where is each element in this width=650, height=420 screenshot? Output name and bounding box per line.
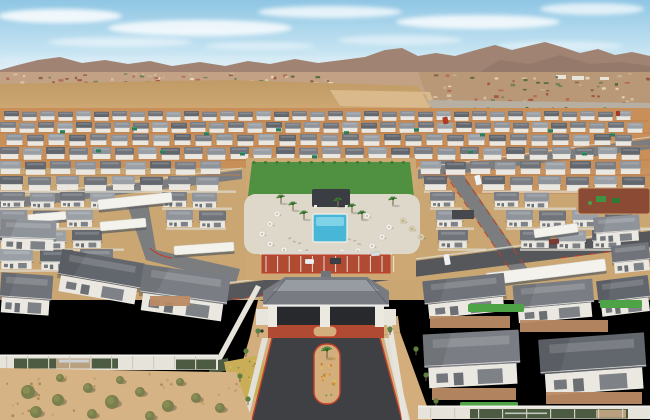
- house: [92, 147, 112, 159]
- house-roof-ridge: [449, 136, 463, 138]
- house-roof-ridge: [492, 113, 504, 114]
- house-roof-ridge: [197, 136, 211, 138]
- umbrella-pole: [402, 220, 403, 221]
- house-roof: [430, 192, 455, 201]
- rooftop-speck: [622, 96, 625, 98]
- rooftop-speck: [111, 78, 113, 81]
- house-roof-ridge: [155, 136, 169, 138]
- house: [258, 134, 276, 145]
- gravel-dot: [238, 386, 240, 388]
- tree-canopy: [433, 398, 438, 403]
- house-roof: [0, 176, 23, 185]
- rooftop-speck: [190, 78, 194, 80]
- front-door: [565, 244, 568, 248]
- house-roof-ridge: [366, 112, 378, 113]
- hedge-shrub: [299, 161, 302, 164]
- house: [380, 122, 397, 132]
- house: [292, 111, 308, 120]
- house: [184, 147, 204, 159]
- house-roof: [140, 177, 163, 186]
- house-roof: [438, 230, 468, 241]
- hedge-shrub: [333, 161, 336, 164]
- front-door: [50, 265, 53, 270]
- house-roof: [531, 135, 548, 142]
- house: [304, 122, 321, 132]
- house-roof: [506, 147, 525, 154]
- cloud: [0, 9, 122, 23]
- house: [90, 134, 108, 145]
- house-roof-ridge: [186, 112, 198, 113]
- gravel-dot: [73, 409, 76, 412]
- house-roof-ridge: [59, 124, 72, 126]
- house: [445, 162, 467, 175]
- house-wall: [521, 169, 540, 174]
- cloud: [338, 35, 462, 45]
- house-wall: [509, 117, 523, 120]
- house-wall: [527, 117, 541, 120]
- house-roof-ridge: [491, 136, 505, 138]
- house-roof-ridge: [534, 123, 547, 125]
- house-wall: [47, 154, 64, 159]
- house-roof: [266, 122, 282, 128]
- house-wall: [154, 142, 170, 146]
- house: [56, 176, 80, 190]
- front-door: [10, 264, 13, 269]
- house-wall: [491, 117, 505, 120]
- house-wall: [96, 129, 111, 133]
- house-roof: [0, 249, 33, 261]
- house-roof-ridge: [554, 135, 568, 137]
- front-door: [529, 243, 532, 247]
- house-wall: [208, 155, 225, 160]
- house: [382, 112, 398, 121]
- rooftop-speck: [291, 76, 295, 78]
- dumpster-lid: [468, 150, 473, 151]
- window: [439, 223, 442, 226]
- house-roof: [361, 123, 377, 129]
- row-sidewalk: [436, 228, 474, 230]
- umbrella-pole: [381, 236, 382, 237]
- house-wall: [257, 117, 271, 120]
- entry-lamp-post: [260, 329, 263, 332]
- house-roof: [285, 123, 301, 129]
- house-wall: [26, 170, 45, 175]
- house-roof: [346, 112, 361, 118]
- house-roof-ridge: [21, 124, 34, 126]
- house-roof: [322, 147, 341, 154]
- row-sidewalk: [162, 208, 232, 210]
- house-roof-ridge: [2, 148, 17, 150]
- house-wall: [229, 128, 244, 132]
- palm-crown: [361, 212, 363, 214]
- house: [276, 147, 296, 159]
- house: [418, 122, 435, 132]
- house: [342, 122, 359, 132]
- house: [171, 123, 188, 133]
- rooftop-speck: [23, 75, 25, 77]
- house-wall: [329, 117, 343, 120]
- rooftop-speck: [591, 89, 594, 91]
- dumpster-lid: [132, 127, 137, 128]
- window: [4, 264, 8, 267]
- house-roof-ridge: [312, 113, 324, 114]
- house: [610, 242, 650, 274]
- rooftop-speck: [528, 99, 533, 101]
- house-wall: [221, 117, 235, 120]
- rooftop-speck: [631, 98, 634, 101]
- house-wall: [511, 141, 527, 145]
- house-wall: [507, 154, 524, 159]
- pilaster: [111, 356, 112, 369]
- rooftop-speck: [133, 75, 135, 77]
- house-roof-ridge: [596, 135, 610, 137]
- garage-door: [89, 243, 97, 248]
- house-roof: [598, 112, 613, 118]
- house-roof: [174, 134, 191, 141]
- dirt-mound: [330, 90, 436, 108]
- dumpster-lid: [276, 128, 281, 129]
- flower: [325, 394, 327, 396]
- house-roof: [22, 112, 37, 118]
- dumpster-lid: [240, 152, 245, 153]
- groundcover-dot: [248, 376, 250, 378]
- house-roof-ridge: [240, 113, 252, 114]
- house-fascia: [520, 240, 550, 241]
- house: [0, 176, 23, 190]
- house-wall: [151, 169, 170, 174]
- house-roof: [544, 111, 559, 117]
- house: [545, 162, 567, 175]
- gravel-dot: [30, 382, 33, 385]
- front-door: [207, 223, 210, 227]
- house-roof: [69, 148, 88, 155]
- house-roof: [304, 122, 320, 128]
- house: [570, 161, 592, 174]
- distant-building: [600, 77, 609, 80]
- house-roof-ridge: [77, 163, 94, 165]
- house-roof: [202, 112, 217, 118]
- house-roof-ridge: [624, 178, 642, 180]
- rooftop-speck: [494, 95, 499, 98]
- house-roof: [166, 112, 181, 118]
- rooftop-speck: [446, 74, 450, 76]
- window: [3, 203, 6, 206]
- house: [475, 123, 492, 133]
- house-roof-ridge: [477, 124, 490, 126]
- house: [95, 123, 112, 133]
- house-roof: [598, 147, 617, 154]
- house: [184, 111, 200, 120]
- rooftop-speck: [433, 96, 437, 97]
- house-roof: [258, 134, 275, 141]
- house-roof-ridge: [428, 135, 442, 137]
- house: [196, 177, 220, 191]
- house-roof: [56, 176, 79, 185]
- house-wall: [461, 154, 478, 159]
- house-roof: [247, 123, 263, 129]
- rooftop-speck: [154, 74, 156, 76]
- house-roof-ridge: [597, 163, 614, 165]
- house: [166, 210, 194, 227]
- house-wall: [238, 142, 254, 146]
- house-roof: [130, 112, 145, 118]
- rooftop-speck: [20, 81, 24, 84]
- house-roof-ridge: [268, 123, 281, 125]
- foreground-desert: [0, 368, 252, 420]
- window: [525, 312, 535, 319]
- house: [483, 148, 503, 160]
- house-roof: [539, 211, 566, 222]
- house-roof: [0, 161, 21, 169]
- house-roof-ridge: [420, 123, 433, 125]
- house-roof-ridge: [512, 135, 526, 137]
- house: [399, 123, 416, 133]
- house-wall: [457, 128, 472, 132]
- gravel-dot: [37, 378, 40, 381]
- house-roof: [72, 230, 102, 241]
- hedge-shrub: [287, 161, 290, 164]
- house-wall: [259, 141, 275, 145]
- house-roof-ridge: [472, 162, 489, 164]
- front-door: [447, 243, 450, 247]
- rooftop-speck: [39, 77, 43, 79]
- house-wall: [248, 129, 263, 133]
- gravel-dot: [37, 397, 40, 400]
- house-roof-ridge: [168, 113, 180, 114]
- house-roof: [483, 148, 502, 155]
- gravel-dot: [17, 403, 19, 405]
- house-wall: [305, 128, 320, 132]
- house-wall: [425, 185, 446, 190]
- front-door: [580, 223, 583, 227]
- house: [84, 177, 108, 191]
- dumpster-lid: [480, 133, 485, 134]
- house-wall: [95, 117, 109, 120]
- house: [148, 111, 164, 120]
- flower: [321, 367, 323, 369]
- house: [520, 161, 542, 174]
- gravel-dot: [22, 413, 24, 415]
- shrub-highlight: [106, 396, 114, 404]
- house-roof-ridge: [540, 177, 558, 179]
- garage-door: [214, 223, 221, 228]
- house-roof: [100, 161, 121, 169]
- house-roof: [454, 112, 469, 118]
- house-wall: [448, 142, 464, 146]
- vehicle-body: [371, 252, 380, 257]
- house-roof-ridge: [301, 149, 316, 151]
- house-roof: [184, 111, 199, 117]
- rooftop-speck: [148, 75, 152, 77]
- garage-door: [537, 243, 545, 248]
- window: [93, 204, 96, 207]
- house: [627, 123, 644, 133]
- house-roof: [27, 135, 44, 142]
- house-roof: [207, 148, 226, 155]
- house-wall: [365, 117, 379, 120]
- banner-photo-panel: [596, 410, 626, 418]
- house: [130, 112, 146, 121]
- house-roof-ridge: [484, 177, 502, 179]
- house: [112, 176, 136, 190]
- house-roof: [621, 148, 640, 155]
- house-fascia: [556, 241, 586, 242]
- house-roof: [0, 192, 25, 201]
- house-wall: [1, 154, 18, 159]
- house: [27, 135, 45, 146]
- house-roof: [470, 161, 491, 169]
- house: [192, 193, 218, 208]
- gravel-dot: [170, 383, 172, 385]
- house-wall: [131, 117, 145, 120]
- house-roof: [627, 123, 643, 129]
- garage-door: [27, 302, 41, 314]
- house-roof: [445, 162, 466, 170]
- house-roof-ridge: [154, 123, 167, 125]
- house: [508, 111, 524, 120]
- house-roof-ridge: [177, 163, 194, 165]
- shrub-highlight: [117, 377, 121, 381]
- rooftop-speck: [512, 80, 514, 82]
- house-wall: [599, 117, 613, 120]
- house-wall: [7, 141, 23, 145]
- house-roof-ridge: [117, 149, 132, 151]
- house: [174, 134, 192, 145]
- garage-door: [633, 262, 644, 271]
- house-wall: [113, 185, 134, 190]
- house-roof-ridge: [568, 178, 586, 180]
- house-roof: [323, 123, 339, 129]
- house-wall: [495, 128, 510, 132]
- play-structure: [588, 201, 592, 205]
- rooftop-speck: [6, 77, 9, 80]
- house-roof-ridge: [60, 113, 72, 114]
- house-wall: [239, 117, 253, 120]
- house-wall: [85, 185, 106, 190]
- house-wall: [546, 170, 565, 175]
- front-door: [438, 203, 441, 206]
- house-roof-ridge: [623, 149, 638, 151]
- hedge-shrub: [310, 161, 313, 164]
- house-roof-ridge: [92, 135, 106, 137]
- garage-door: [538, 203, 545, 207]
- house-roof-ridge: [33, 194, 53, 196]
- house-roof: [418, 112, 433, 118]
- turf-lawn: [600, 300, 642, 308]
- gatehouse-roof-ridge: [273, 280, 379, 291]
- pilaster: [6, 356, 7, 369]
- house: [552, 147, 572, 159]
- house-wall: [324, 129, 339, 133]
- umbrella-pole: [283, 249, 284, 250]
- house: [209, 123, 226, 133]
- pilaster: [550, 408, 551, 418]
- house-roof-ridge: [249, 124, 262, 126]
- house-roof: [192, 193, 217, 202]
- flower: [329, 373, 331, 375]
- house-roof-ridge: [239, 136, 253, 138]
- rooftop-speck: [327, 80, 329, 82]
- house-wall: [29, 185, 50, 190]
- house-roof: [253, 148, 272, 155]
- house-wall: [469, 141, 485, 145]
- house-wall: [197, 185, 218, 190]
- house-fascia: [0, 261, 33, 262]
- house-wall: [217, 141, 233, 145]
- gravel-dot: [93, 385, 95, 387]
- pool-shallow-end: [316, 217, 344, 226]
- tree-canopy: [237, 373, 242, 378]
- hedge-shrub: [276, 161, 279, 164]
- turf-lawn: [468, 304, 524, 312]
- garage-door: [44, 203, 51, 207]
- house-roof: [436, 111, 451, 117]
- gravel-dot: [6, 383, 8, 385]
- house-roof-ridge: [204, 113, 216, 114]
- house-roof: [148, 111, 163, 117]
- house-wall: [185, 154, 202, 159]
- house-roof: [570, 122, 586, 128]
- umbrella-pole: [269, 223, 270, 224]
- house-wall: [139, 154, 156, 159]
- rooftop-speck: [452, 75, 456, 77]
- house-roof: [620, 161, 641, 169]
- vehicle-body: [330, 258, 341, 264]
- rooftop-speck: [52, 81, 55, 83]
- house-roof-ridge: [528, 113, 540, 114]
- rooftop-speck: [310, 80, 313, 82]
- gravel-dot: [11, 414, 14, 417]
- rooftop-speck: [470, 77, 474, 79]
- house-wall: [93, 154, 110, 159]
- house: [510, 177, 534, 191]
- pilaster: [502, 408, 503, 418]
- vehicle-body: [305, 259, 314, 264]
- house-wall: [275, 117, 289, 120]
- house: [28, 177, 52, 191]
- house-roof-ridge: [63, 194, 83, 196]
- front-door: [174, 223, 177, 227]
- house-roof-ridge: [438, 112, 450, 113]
- rooftop-speck: [498, 90, 503, 92]
- house-roof-ridge: [258, 112, 270, 113]
- house-wall: [126, 170, 145, 175]
- rooftop-speck: [556, 76, 558, 78]
- house: [589, 123, 606, 133]
- gravel-dot: [38, 382, 41, 385]
- house: [620, 161, 642, 174]
- dumpster-lid: [548, 129, 553, 130]
- house-wall: [343, 141, 359, 145]
- house-wall: [385, 141, 401, 145]
- groundcover-dot: [249, 361, 251, 363]
- wall-cap: [418, 406, 650, 408]
- gravel-dot: [163, 386, 166, 389]
- house: [100, 161, 122, 174]
- house: [50, 161, 72, 174]
- play-structure: [596, 196, 606, 202]
- house: [48, 134, 66, 145]
- house-roof-ridge: [152, 162, 169, 164]
- house: [46, 147, 66, 159]
- house: [58, 112, 74, 121]
- house-wall: [552, 129, 567, 133]
- house: [544, 111, 560, 120]
- rooftop-speck: [523, 89, 527, 91]
- house-wall: [483, 185, 504, 190]
- house-roof: [76, 111, 91, 117]
- house: [220, 111, 236, 120]
